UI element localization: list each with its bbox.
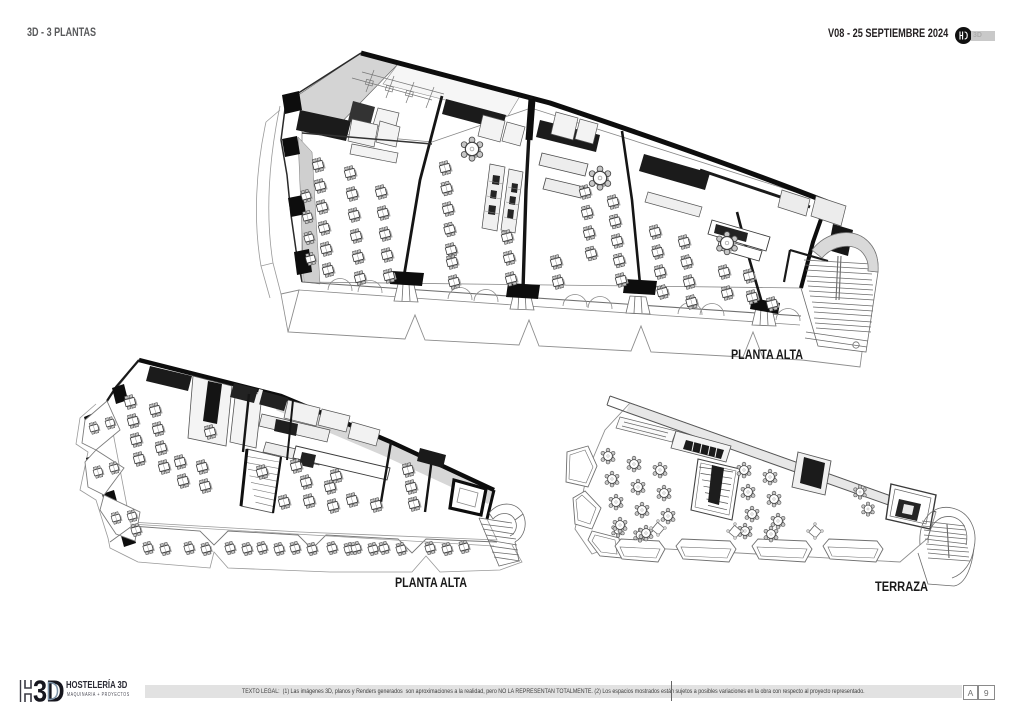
svg-text:PLANTA ALTA: PLANTA ALTA (395, 575, 467, 590)
svg-text:TERRAZA: TERRAZA (875, 579, 928, 594)
svg-text:PLANTA ALTA: PLANTA ALTA (731, 347, 803, 362)
